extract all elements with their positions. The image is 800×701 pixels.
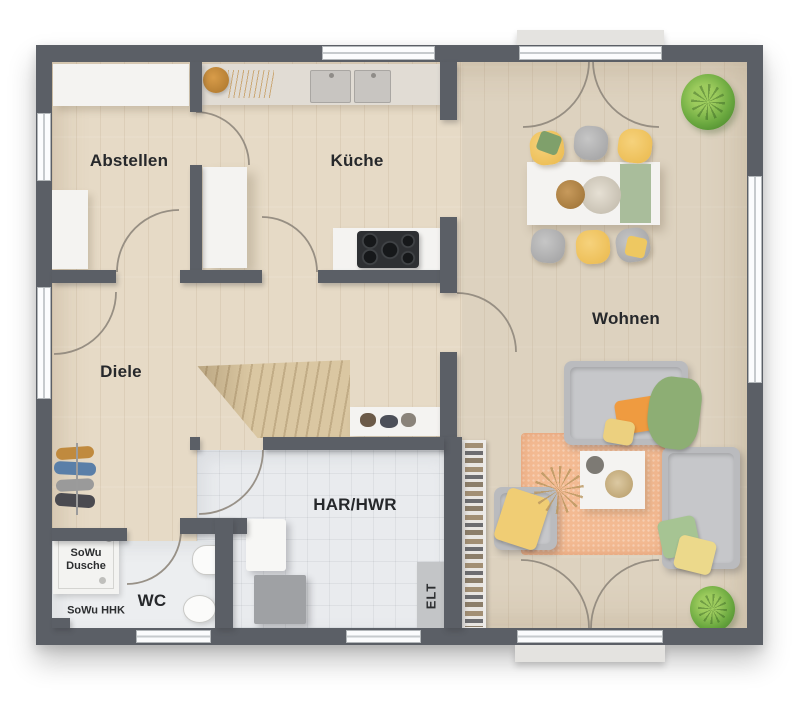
storage-window — [37, 113, 51, 181]
kitchen-window — [322, 46, 435, 60]
wall-utility-living — [444, 437, 462, 628]
wall-storage-right-bottom — [190, 165, 202, 277]
wall-storage-bottom — [52, 270, 116, 283]
utility-window — [346, 630, 421, 643]
living-window-right — [748, 176, 762, 383]
wall-kitchen-bottom — [318, 270, 452, 283]
wall-kitchen-living-mid — [440, 217, 457, 293]
room-label-wc: WC — [138, 591, 167, 611]
room-label-diele: Diele — [100, 362, 142, 382]
wc-towel-radiator — [52, 618, 70, 628]
entrance-door — [37, 287, 51, 399]
wall-storage-right-top — [190, 62, 202, 112]
wall-kitchen-living-top — [440, 62, 457, 120]
wall-wc-utility — [215, 518, 233, 628]
french-door-top — [519, 46, 662, 60]
annotation-heater: SoWu HHK — [67, 605, 125, 618]
wall-wc-top — [52, 528, 127, 541]
door-swing-arcs — [0, 0, 800, 701]
wall-utility-top — [263, 437, 444, 450]
annotation-shower: SoWu Dusche — [66, 547, 106, 573]
wall-hall-top — [180, 270, 262, 283]
room-label-har-hwr: HAR/HWR — [313, 495, 397, 515]
room-label-abstellen: Abstellen — [90, 151, 168, 171]
wall-kitchen-living-bottom — [440, 352, 457, 450]
wall-wc-top-right — [180, 518, 247, 534]
annotation-shower-line2: Dusche — [66, 560, 106, 572]
floor-plan-page: { "title": "floor-plan-ground-floor", "r… — [0, 0, 800, 701]
room-label-kueche: Küche — [331, 151, 384, 171]
room-label-wohnen: Wohnen — [592, 309, 660, 329]
wall-utility-top-stub — [190, 437, 200, 450]
annotation-shower-line1: SoWu — [71, 547, 102, 559]
annotation-electrical: ELT — [425, 583, 438, 610]
french-door-bottom — [517, 630, 663, 643]
wc-window — [136, 630, 211, 643]
